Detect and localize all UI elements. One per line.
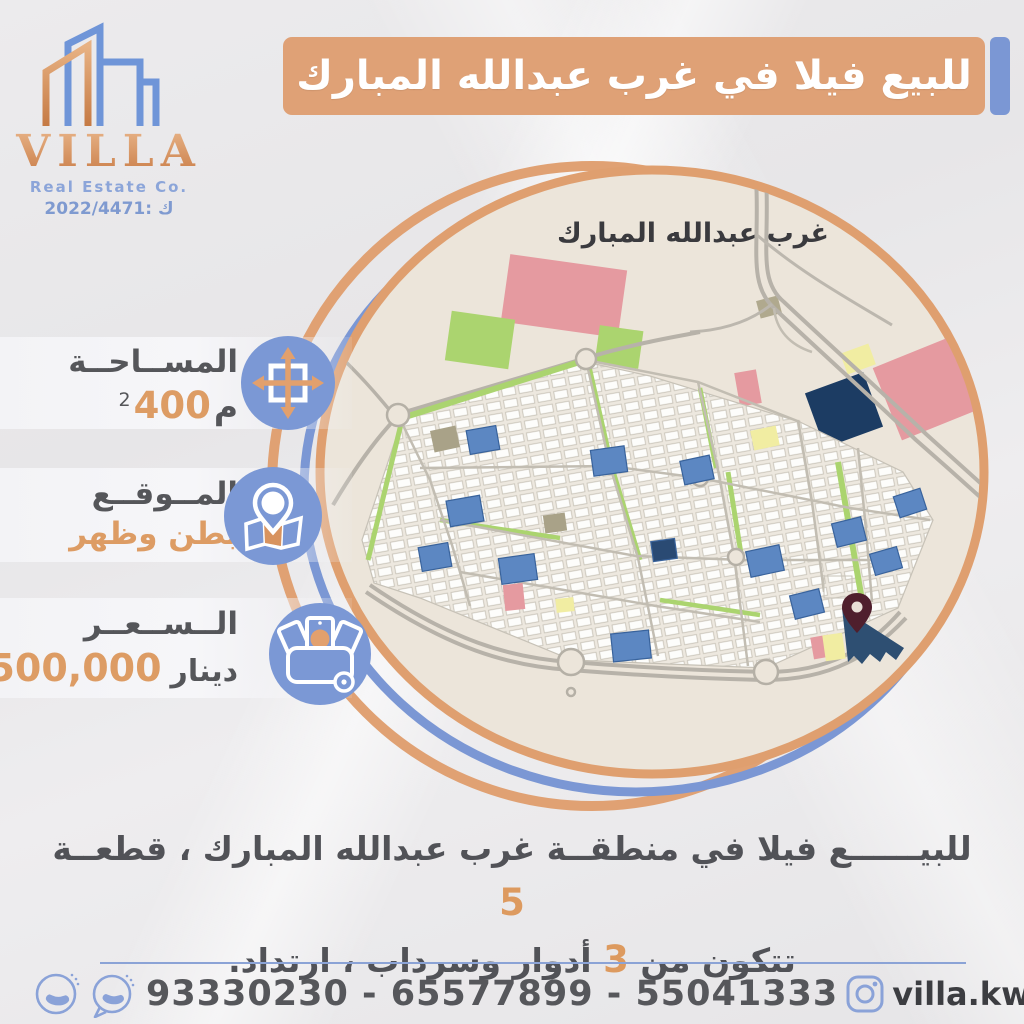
location-info: المــوقــع بطن وظهر [0, 476, 238, 552]
phone-group[interactable]: 93330230 - 65577899 - 55041333 [28, 970, 838, 1018]
footer: 93330230 - 65577899 - 55041333 villa.kw … [28, 966, 1010, 1022]
area-unit: م [214, 387, 238, 426]
instagram-icon [842, 971, 888, 1017]
phone-icon [32, 970, 80, 1018]
area-value: 400 [134, 384, 211, 427]
title-banner: للبيع فيلا في غرب عبدالله المبارك [283, 37, 985, 115]
price-icon-badge [269, 603, 371, 705]
map-district-label: غرب عبدالله المبارك [557, 218, 829, 249]
price-label: الــســعــر [0, 606, 238, 642]
flyer-page: { "logo": { "name": "VILLA", "subtitle":… [0, 0, 1024, 1024]
price-unit: دينار [171, 654, 238, 689]
location-icon-badge [224, 467, 322, 565]
description: للبيــــــع فيلا في منطقــة غرب عبدالله … [52, 822, 972, 990]
logo-name: VILLA [14, 126, 204, 177]
price-info: الــســعــر 500,000 دينار [0, 606, 238, 690]
area-info: المســاحــة 2 400 م [0, 344, 238, 427]
area-icon-badge [241, 336, 335, 430]
instagram-handle[interactable]: villa.kw [892, 975, 1024, 1013]
instagram-group[interactable]: villa.kw [838, 971, 1024, 1017]
location-value: بطن وظهر [69, 516, 238, 552]
phone-numbers[interactable]: 93330230 - 65577899 - 55041333 [146, 974, 838, 1014]
area-superscript: 2 [118, 389, 130, 411]
area-expand-icon [241, 336, 335, 430]
plot-number: 5 [499, 881, 525, 924]
building-logo-icon [24, 18, 194, 130]
banner-title: للبيع فيلا في غرب عبدالله المبارك [296, 53, 972, 99]
money-wallet-icon [269, 603, 371, 705]
banner-accent-bar [990, 37, 1010, 115]
footer-divider [100, 962, 966, 964]
whatsapp-icon [88, 970, 136, 1018]
location-pin-icon [224, 467, 322, 565]
location-label: المــوقــع [0, 476, 238, 512]
company-logo: VILLA Real Estate Co. 2022/4471: ك [14, 18, 204, 219]
description-line1: للبيــــــع فيلا في منطقــة غرب عبدالله … [52, 829, 971, 868]
logo-subtitle: Real Estate Co. [14, 178, 204, 196]
logo-license-number: 2022/4471: ك [14, 199, 204, 219]
price-value: 500,000 [0, 646, 162, 690]
area-label: المســاحــة [0, 344, 238, 380]
